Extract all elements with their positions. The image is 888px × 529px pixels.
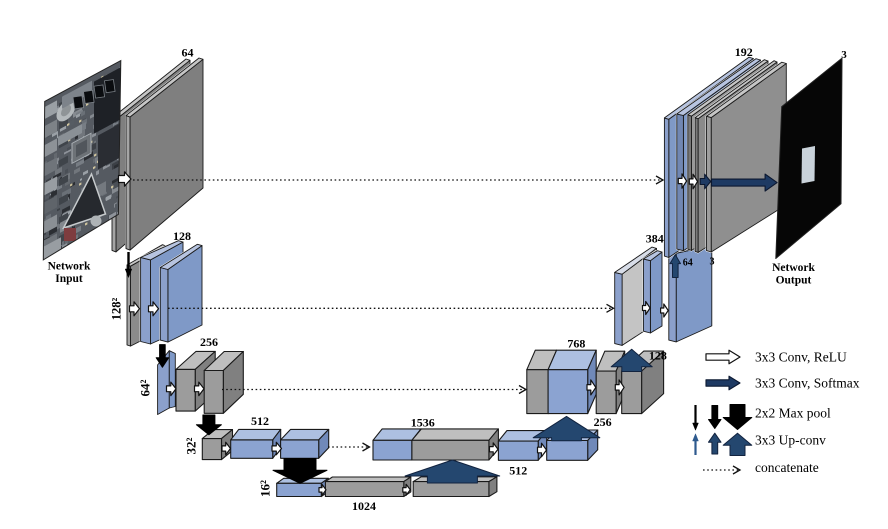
svg-text:768: 768 [567, 337, 585, 351]
svg-text:1024: 1024 [352, 499, 376, 513]
svg-text:Network: Network [772, 262, 815, 274]
svg-text:3x3 Conv, Softmax: 3x3 Conv, Softmax [755, 376, 860, 391]
svg-text:64²: 64² [138, 379, 153, 396]
svg-text:2x2 Max pool: 2x2 Max pool [755, 406, 831, 421]
svg-text:3x3 Conv, ReLU: 3x3 Conv, ReLU [755, 350, 847, 365]
svg-text:concatenate: concatenate [755, 460, 819, 475]
svg-text:128: 128 [173, 229, 191, 243]
svg-text:32²: 32² [184, 437, 199, 454]
svg-text:3x3 Up-conv: 3x3 Up-conv [755, 433, 826, 448]
svg-text:3: 3 [710, 257, 715, 268]
svg-text:384: 384 [646, 231, 664, 245]
svg-text:512: 512 [509, 464, 527, 478]
svg-text:3: 3 [841, 49, 847, 61]
svg-text:64: 64 [182, 46, 194, 60]
svg-text:256: 256 [594, 415, 612, 429]
svg-text:Network: Network [48, 261, 91, 273]
svg-text:Output: Output [776, 275, 812, 287]
svg-text:Input: Input [55, 273, 83, 285]
svg-text:1536: 1536 [411, 416, 435, 430]
svg-text:256: 256 [200, 335, 218, 349]
svg-text:512: 512 [251, 414, 269, 428]
svg-text:16²: 16² [258, 480, 273, 497]
svg-text:128: 128 [649, 349, 667, 363]
svg-text:128²: 128² [110, 298, 124, 321]
svg-text:192: 192 [735, 45, 753, 59]
svg-text:64: 64 [683, 258, 693, 269]
